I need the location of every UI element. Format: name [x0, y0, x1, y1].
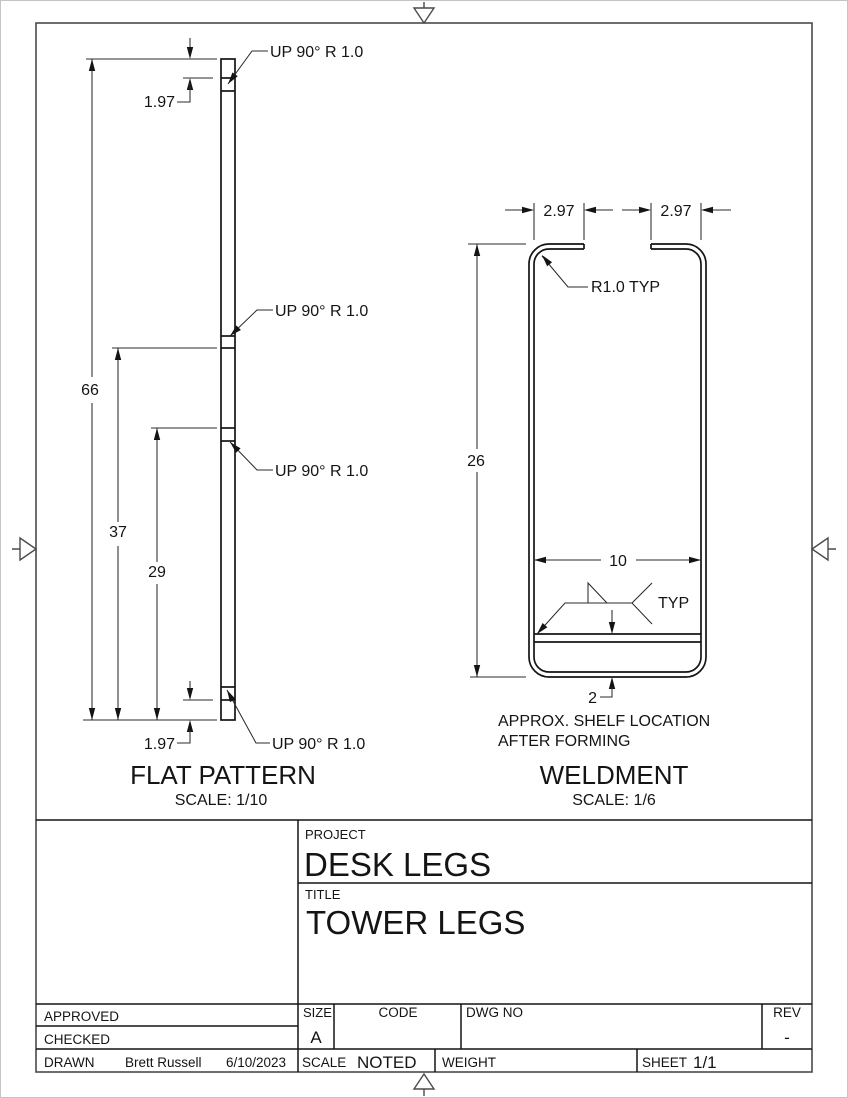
dim-297-right-text: 2.97: [660, 203, 691, 220]
radius-callout-text: R1.0 TYP: [591, 279, 660, 296]
dim-197-top: 1.97: [144, 38, 193, 111]
sheet-value: 1/1: [693, 1053, 717, 1072]
code-label: CODE: [378, 1005, 417, 1020]
bend-callout-2-text: UP 90° R 1.0: [275, 303, 368, 320]
drawn-label: DRAWN: [44, 1055, 95, 1070]
rev-value: -: [784, 1028, 790, 1047]
bend-callout-2: UP 90° R 1.0: [230, 303, 368, 336]
extension-lines: [83, 59, 217, 720]
dim-297-right: 2.97: [622, 203, 731, 220]
dim-26-text: 26: [467, 453, 485, 470]
weldment-title: WELDMENT: [540, 760, 689, 790]
title-label: TITLE: [305, 887, 341, 902]
drawn-date-value: 6/10/2023: [226, 1055, 286, 1070]
dim-197-bottom-text: 1.97: [144, 736, 175, 753]
drawing-canvas: 1.97 66 37 29: [0, 0, 848, 1098]
flat-strip: [221, 59, 235, 720]
dim-2-shelf: 2: [588, 610, 615, 707]
dim-66: 66: [81, 59, 99, 720]
bend-callout-4-text: UP 90° R 1.0: [272, 736, 365, 753]
dim-197-bottom: 1.97: [144, 681, 193, 753]
title-value: TOWER LEGS: [306, 904, 525, 941]
title-cell: TITLE TOWER LEGS: [305, 887, 525, 941]
checked-label: CHECKED: [44, 1032, 110, 1047]
dwg-no-label: DWG NO: [466, 1005, 523, 1020]
dim-29: 29: [148, 428, 166, 720]
drawing-sheet: 1.97 66 37 29: [0, 0, 848, 1098]
center-marker-left-icon: [12, 538, 36, 560]
drawn-by-value: Brett Russell: [125, 1055, 202, 1070]
flange-end-caps: [584, 244, 651, 249]
size-value: A: [310, 1028, 322, 1047]
title-block: PROJECT DESK LEGS TITLE TOWER LEGS APPRO…: [36, 820, 812, 1072]
dim-197-top-text: 1.97: [144, 94, 175, 111]
shelf-lines: [534, 634, 701, 642]
dim-297-left-text: 2.97: [543, 203, 574, 220]
dim-37: 37: [109, 348, 127, 720]
sheet-label: SHEET: [642, 1055, 687, 1070]
dim-37-text: 37: [109, 524, 127, 541]
dim-297-left: 2.97: [505, 203, 613, 220]
weldment-scale: SCALE: 1/6: [572, 792, 656, 809]
dim-66-text: 66: [81, 382, 99, 399]
project-label: PROJECT: [305, 827, 366, 842]
bend-callout-1-text: UP 90° R 1.0: [270, 44, 363, 61]
scale-value: NOTED: [357, 1053, 417, 1072]
dim-29-text: 29: [148, 564, 166, 581]
dim-2-text: 2: [588, 690, 597, 707]
bend-callout-3: UP 90° R 1.0: [230, 442, 368, 480]
shelf-note-line2: AFTER FORMING: [498, 733, 630, 750]
weldment-view: 2.97 2.97 26 10: [467, 203, 731, 809]
center-marker-bottom-icon: [414, 1074, 434, 1096]
project-value: DESK LEGS: [304, 846, 491, 883]
flat-pattern-scale: SCALE: 1/10: [175, 792, 268, 809]
size-label: SIZE: [303, 1005, 332, 1020]
scale-label: SCALE: [302, 1055, 346, 1070]
weight-label: WEIGHT: [442, 1055, 496, 1070]
weldment-outline-outer: [529, 244, 706, 677]
shelf-note-line1: APPROX. SHELF LOCATION: [498, 713, 710, 730]
radius-callout: R1.0 TYP: [542, 255, 660, 296]
flat-pattern-view: 1.97 66 37 29: [81, 38, 368, 809]
rev-label: REV: [773, 1005, 801, 1020]
approved-label: APPROVED: [44, 1009, 119, 1024]
bend-callout-3-text: UP 90° R 1.0: [275, 463, 368, 480]
weld-typ-text: TYP: [658, 595, 689, 612]
center-marker-top-icon: [414, 2, 434, 23]
dim-10-text: 10: [609, 553, 627, 570]
dim-26: 26: [467, 244, 485, 677]
project-cell: PROJECT DESK LEGS: [304, 827, 491, 883]
dim-10: 10: [534, 553, 701, 570]
center-marker-right-icon: [812, 538, 836, 560]
bend-callout-4: UP 90° R 1.0: [227, 690, 365, 753]
bend-callout-1: UP 90° R 1.0: [228, 44, 363, 84]
flat-pattern-title: FLAT PATTERN: [130, 760, 316, 790]
